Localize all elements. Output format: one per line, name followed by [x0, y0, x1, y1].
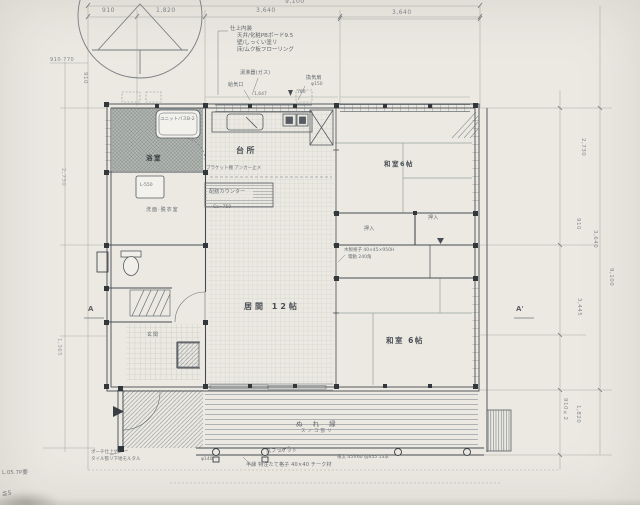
step-stone [487, 410, 511, 451]
dim-top-4: 3,640 [392, 10, 412, 17]
note-vent-fan-dia: φ150 [311, 83, 323, 88]
tatami-lines [335, 143, 472, 385]
note-deck-3: 根太 45×60 @455 13本 [337, 456, 389, 461]
note-deck-0: φ140 [201, 458, 213, 463]
note-air-intake: 給気口 [228, 83, 244, 89]
room-kitchen: 台所 [236, 147, 257, 156]
dim-right-2: 910 [575, 218, 581, 230]
section-marker-a: A [88, 306, 93, 314]
label-serving-counter: 配膳カウンター [209, 190, 245, 196]
note-deck-2: 半縁 特注たて格子 40×40 チーク材 [246, 463, 332, 469]
label-deck-sub: スノコ張リ [301, 430, 334, 435]
spec-line-2: 壁/しっくい塗リ [237, 40, 277, 47]
dim-right-6: 1,820 [575, 405, 581, 423]
room-tatami-top: 和室6帖 [384, 161, 414, 168]
room-closet-1: 押入 [364, 227, 374, 233]
dim-top-overall: 9,100 [285, 0, 305, 6]
dim-right-4: 3,445 [576, 298, 582, 316]
dim-right-3: 3,640 [592, 230, 598, 248]
spec-title: 仕上内装 [230, 26, 252, 33]
scan-bottom-shade [0, 498, 640, 505]
label-counter-height: Ca=750 [213, 206, 231, 211]
note-width-780: 780 [297, 91, 306, 96]
dim-left-3: 2,730 [60, 168, 66, 186]
note-porch-1: ポーチ仕上ゲ/ [91, 451, 120, 456]
section-marker-a-prime: A' [516, 306, 524, 314]
fan-arrow [288, 90, 293, 96]
stairs [130, 290, 170, 316]
note-porch-2: タイル張リ下地モルタル [91, 458, 141, 463]
floor-plan-sheet: 9,100 910 1,820 3,640 3,640 2,730 910 3,… [0, 0, 640, 505]
dim-right-1: 2,730 [580, 138, 586, 156]
spec-line-3: 床/ムク板フローリング [237, 47, 294, 54]
note-deck-1: 丸ブラケット [266, 449, 297, 455]
eave-boxes [122, 90, 312, 102]
porch-hatch [122, 390, 203, 448]
toilet [121, 251, 141, 276]
note-gas-heater: 湯沸器(ガス) [240, 71, 270, 77]
dim-left-4: 1,365 [56, 338, 62, 356]
label-bath-unit: ユニットバスB-2 [160, 118, 195, 123]
north-symbol [78, 0, 202, 78]
dim-top-2: 1,820 [156, 8, 176, 15]
room-closet-2: 押入 [428, 216, 438, 222]
dimension-ticks [86, 3, 602, 457]
room-tatami-bottom: 和室 6帖 [386, 337, 424, 345]
dim-left-2: 910 [82, 72, 88, 84]
room-living: 居間 12帖 [244, 303, 300, 312]
dim-top-1: 910 [102, 8, 115, 15]
deck-planks [205, 392, 478, 447]
label-deck: ぬ れ 縁 [296, 421, 340, 428]
room-bath: 浴室 [146, 155, 162, 162]
shoe-cabinet [178, 343, 199, 367]
dim-left-1: 910·770 [50, 58, 74, 64]
label-laundry: L-550 [140, 184, 153, 189]
room-washroom: 洗面·脱衣室 [146, 208, 179, 214]
sliding-mark [437, 238, 444, 244]
room-entrance: 玄関 [147, 333, 159, 339]
note-vent-fan: 換気扇 [306, 76, 322, 82]
note-lattice-1: 木製格子 40×45×950H [344, 249, 394, 254]
spec-line-1: 天井/化粧PBボード9.5 [237, 33, 293, 40]
note-width-1647: 1,647 [254, 93, 267, 98]
ldk-floor-grid [208, 112, 334, 384]
dim-right-overall: 9,100 [608, 268, 614, 286]
handwritten-note-1: L.05.7P要 [2, 470, 28, 476]
dim-right-5: 910×2 [562, 398, 568, 421]
dim-top-3: 3,640 [256, 8, 276, 15]
scan-corner-smudge [0, 491, 60, 505]
note-lattice-2: 電動 240角 [348, 256, 372, 261]
note-bracket-shelf: ブラケット棚 アンカー止メ [206, 167, 261, 172]
